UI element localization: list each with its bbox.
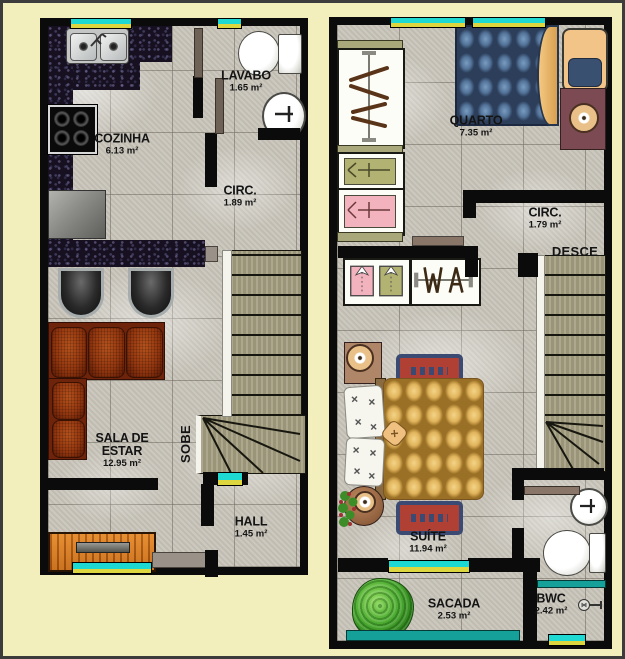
stitch-icon: [345, 438, 384, 486]
stair-winder: [196, 415, 306, 474]
window: [217, 18, 242, 29]
room-name: QUARTO: [450, 115, 503, 128]
stair-stringer: [222, 250, 232, 417]
sofa-cushion: [51, 327, 87, 378]
door-threshold: [152, 552, 207, 568]
window-glass: [218, 473, 242, 480]
wall-shelf: [412, 236, 464, 246]
shower-head-icon: [577, 597, 604, 613]
lamp-icon: [346, 344, 374, 372]
wall: [193, 76, 203, 118]
sofa-cushion: [52, 382, 85, 420]
burner-icon: [54, 111, 70, 127]
pillow: [344, 437, 385, 487]
wall: [338, 246, 478, 258]
sofa-cushion: [126, 327, 163, 378]
stair-label-desce: DESCE: [552, 245, 598, 259]
room-label-circ: CIRC. 1.79 m²: [528, 207, 561, 232]
room-label-sala: SALA DE ESTAR 12.95 m²: [95, 432, 148, 470]
clothes-fold-icon: [344, 195, 394, 226]
room-name: CIRC.: [528, 207, 561, 220]
window-sill: [389, 567, 469, 572]
shower-partition: [537, 580, 606, 588]
lamp-icon: [569, 103, 599, 133]
window: [70, 18, 132, 29]
sofa-cushion: [52, 420, 85, 458]
rug-pattern: [411, 367, 449, 375]
burner-icon: [54, 130, 70, 146]
room-area: 2.42 m²: [535, 606, 568, 617]
stair-stringer: [536, 255, 545, 472]
room-area: 11.94 m²: [409, 544, 447, 555]
room-name: ESTAR: [95, 445, 148, 458]
toilet-bowl: [543, 530, 591, 576]
wall: [512, 468, 604, 480]
bar-stool: [58, 268, 104, 318]
staircase-down: [543, 255, 606, 417]
wall: [463, 190, 604, 203]
room-name: SUÍTE: [409, 531, 447, 544]
burner-icon: [73, 130, 89, 146]
counter-end: [205, 246, 218, 262]
window: [390, 17, 466, 28]
room-area: 1.45 m²: [235, 529, 268, 540]
stair-direction: SOBE: [179, 425, 193, 463]
sink-drain: [79, 42, 88, 51]
toilet-tank: [278, 34, 302, 74]
faucet-icon: [88, 31, 108, 49]
floorplan-canvas: COZINHA 6.13 m² LAVABO 1.65 m² CIRC. 1.8…: [0, 0, 625, 659]
room-area: 7.35 m²: [450, 128, 503, 139]
room-area: 1.79 m²: [528, 220, 561, 231]
stair-winder: [543, 415, 606, 472]
room-label-sacada: SACADA 2.53 m²: [428, 598, 480, 623]
room-label-suite: SUÍTE 11.94 m²: [409, 531, 447, 556]
wall: [258, 128, 300, 140]
window-sill: [473, 23, 545, 27]
door-leaf: [194, 28, 203, 78]
wall: [512, 480, 524, 500]
dresser-clothes: [343, 258, 411, 306]
stove-cooktop: [48, 105, 97, 154]
kitchen-sink: [66, 28, 129, 64]
wall: [201, 484, 214, 526]
room-area: 1.89 m²: [223, 198, 256, 209]
pillow: [343, 385, 386, 440]
room-name: SACADA: [428, 598, 480, 611]
bar-stool: [128, 268, 174, 318]
sofa: [48, 378, 87, 460]
wall: [463, 190, 476, 218]
kitchen-appliance: [48, 190, 106, 239]
room-label-lavabo: LAVABO 1.65 m²: [221, 70, 271, 95]
room-area: 6.13 m²: [94, 146, 150, 157]
room-name: LAVABO: [221, 70, 271, 83]
wardrobe-cap: [337, 232, 403, 242]
tv-screen: [76, 542, 130, 553]
winder-lines: [544, 416, 605, 471]
room-label-circ: CIRC. 1.89 m²: [223, 185, 256, 210]
ground-floor-plan: COZINHA 6.13 m² LAVABO 1.65 m² CIRC. 1.8…: [40, 18, 308, 575]
room-area: 12.95 m²: [95, 458, 148, 469]
breakfast-bar: [48, 240, 205, 267]
winder-lines: [201, 416, 305, 473]
stitch-icon: [344, 386, 384, 438]
quilt-fold: [537, 25, 559, 126]
window: [472, 17, 546, 28]
staircase-up: [230, 250, 302, 417]
hanger-rail-icon: [341, 50, 397, 143]
room-area: 1.65 m²: [221, 83, 271, 94]
wardrobe-shelf: [337, 188, 405, 236]
stair-label-sobe: SOBE: [179, 425, 193, 463]
clothes-fold-icon: [344, 158, 394, 183]
wall: [338, 558, 388, 572]
window: [548, 634, 586, 646]
wardrobe-shelf: [337, 152, 405, 192]
window-sill: [218, 480, 242, 485]
window: [72, 562, 152, 574]
wall: [40, 478, 158, 490]
upper-floor-plan: QUARTO 7.35 m² CIRC. 1.79 m² DESCE SUÍTE…: [329, 17, 612, 649]
room-label-cozinha: COZINHA 6.13 m²: [94, 133, 150, 158]
shirt-icon: [349, 262, 375, 300]
sofa-cushion: [88, 327, 125, 378]
room-area: 2.53 m²: [428, 611, 480, 622]
window-sill: [549, 641, 585, 645]
sofa: [48, 322, 165, 380]
wall: [518, 253, 538, 277]
faucet-icon: [579, 497, 597, 515]
room-name: CIRC.: [223, 185, 256, 198]
wall: [205, 133, 217, 187]
wall: [465, 246, 478, 277]
sink-drain: [109, 42, 118, 51]
room-name: BWC: [535, 593, 568, 606]
wardrobe-hanging: [337, 48, 405, 149]
chair-cushion: [568, 58, 602, 87]
stair-direction: DESCE: [552, 245, 598, 259]
room-label-hall: HALL 1.45 m²: [235, 516, 268, 541]
door-leaf: [524, 486, 580, 495]
room-label-quarto: QUARTO 7.35 m²: [450, 115, 503, 140]
wall: [205, 550, 218, 577]
window-sill: [73, 569, 151, 573]
balcony-railing: [346, 630, 520, 641]
window: [388, 560, 470, 573]
bedroom-chair: [562, 28, 608, 92]
faucet-icon: [273, 103, 295, 125]
toilet-tank: [589, 533, 606, 573]
plant-icon: [337, 488, 365, 530]
rug-pattern: [411, 514, 449, 522]
room-name: HALL: [235, 516, 268, 529]
room-label-bwc: BWC 2.42 m²: [535, 593, 568, 618]
window-sill: [71, 24, 131, 28]
window-sill: [218, 24, 241, 28]
window-sill: [391, 23, 465, 27]
room-name: COZINHA: [94, 133, 150, 146]
shirt-icon: [378, 262, 404, 300]
window: [217, 472, 243, 486]
burner-icon: [73, 111, 89, 127]
